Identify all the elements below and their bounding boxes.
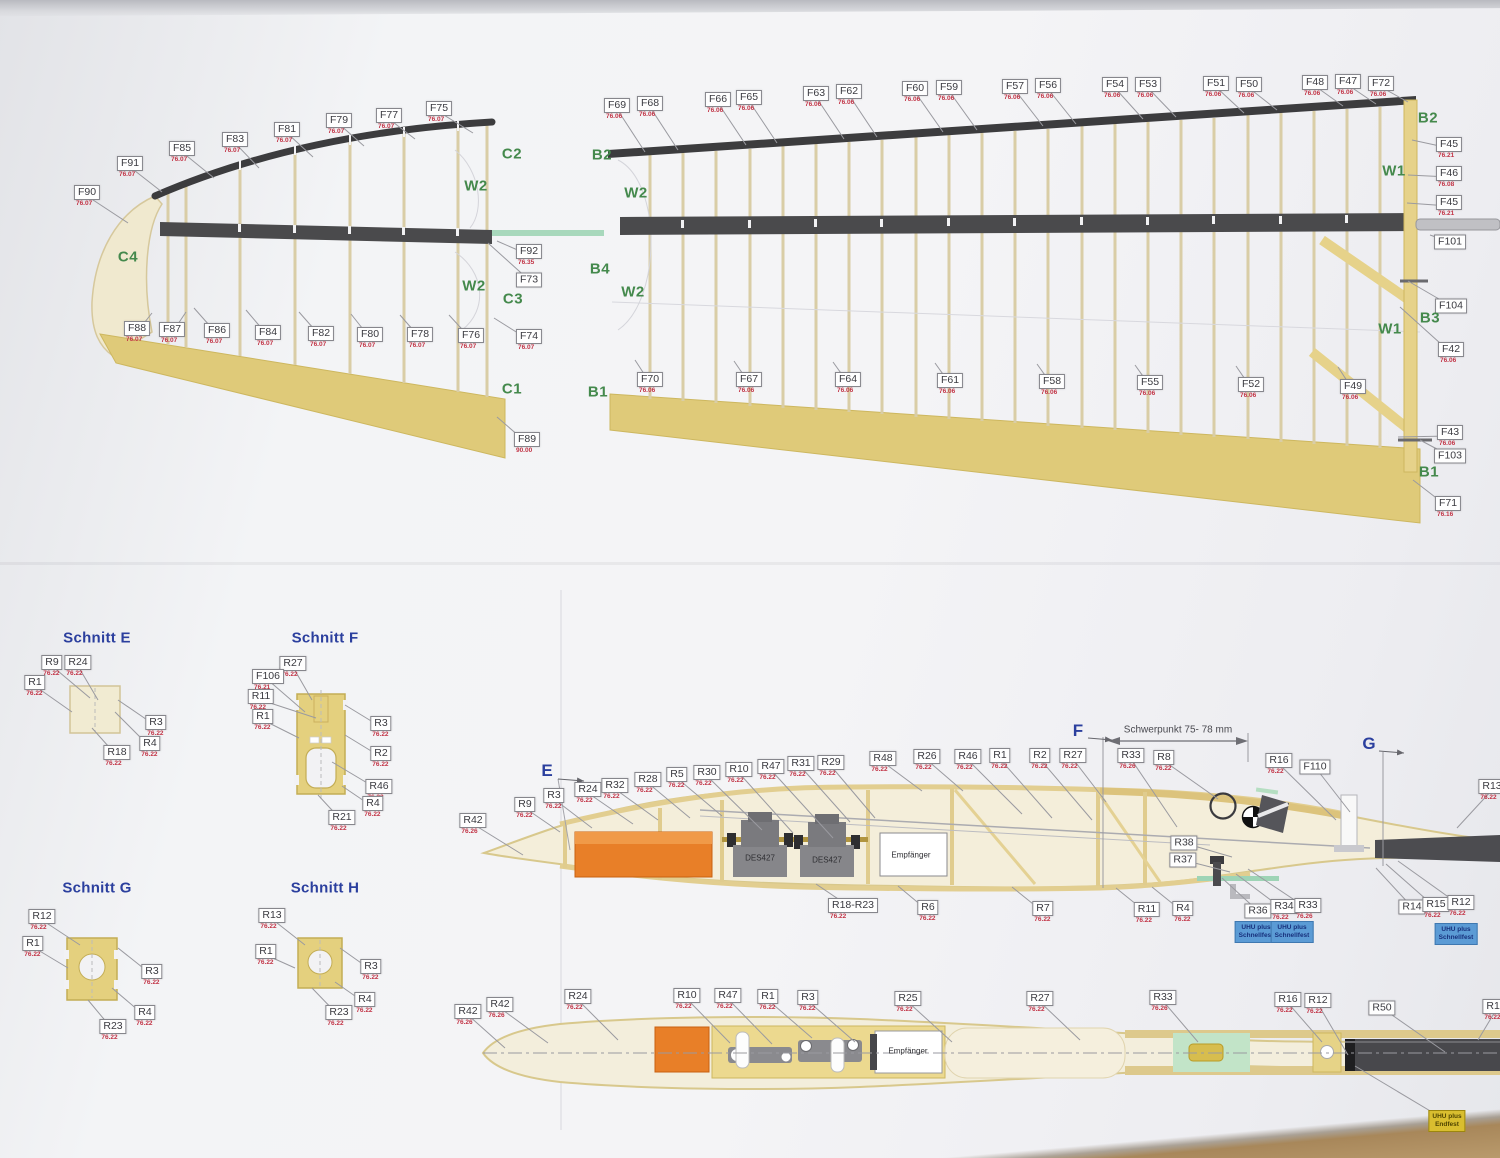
part-label-f60: F6076.06: [902, 81, 928, 103]
part-label-f43: F4376.06: [1437, 425, 1463, 447]
part-label-r47: R4776.22: [714, 988, 741, 1010]
part-label-r1: R176.22: [252, 709, 273, 731]
region-c4: C4: [118, 249, 138, 266]
part-label-r1: R176.22: [22, 936, 43, 958]
part-label-r6: R676.22: [917, 900, 938, 922]
part-label-r3: R376.22: [360, 959, 381, 981]
title-schnitt-h: Schnitt H: [291, 880, 360, 897]
part-label-f84: F8476.07: [255, 325, 281, 347]
title-schnitt-e: Schnitt E: [63, 630, 131, 647]
part-label-r2: R276.22: [370, 746, 391, 768]
part-label-f82: F8276.07: [308, 326, 334, 348]
part-label-f58: F5876.06: [1039, 374, 1065, 396]
part-label-r11: R1176.22: [248, 689, 274, 711]
part-label-r48: R4876.22: [869, 751, 896, 773]
part-label-f77: F7776.07: [376, 108, 402, 130]
badge-blue-uhu-plus-schnellfest: UHU plusSchnellfest: [1271, 921, 1314, 943]
part-label-f89: F8990.00: [514, 432, 540, 454]
part-label-f87: F8776.07: [159, 322, 185, 344]
marker-f: F: [1073, 721, 1083, 741]
part-label-r50: R50: [1368, 1001, 1395, 1016]
part-label-r21: R2176.22: [328, 810, 355, 832]
part-label-r4: R476.22: [354, 992, 375, 1014]
part-label-r24: R2476.22: [574, 782, 601, 804]
part-label-f65: F6576.06: [736, 90, 762, 112]
part-label-r46: R4676.22: [954, 749, 981, 771]
part-label-f47: F4776.06: [1335, 74, 1361, 96]
part-label-r3: R376.22: [543, 788, 564, 810]
part-label-f64: F6476.06: [835, 372, 861, 394]
tiny-empfänger: Empfänger: [891, 851, 930, 860]
part-label-r24: R2476.22: [64, 655, 91, 677]
part-label-f83: F8376.07: [222, 132, 248, 154]
part-label-r13: R1376.22: [258, 908, 285, 930]
region-b1: B1: [588, 384, 608, 401]
plan-photo: F9076.07F9176.07F8576.07F8376.07F8176.07…: [0, 0, 1500, 1158]
title-schnitt-g: Schnitt G: [62, 880, 131, 897]
part-label-f70: F7076.06: [637, 372, 663, 394]
dim-schwerpunkt-75-78-mm: Schwerpunkt 75- 78 mm: [1124, 725, 1232, 736]
part-label-f92: F9276.35: [516, 244, 542, 266]
part-label-r12: R1276.22: [1304, 993, 1331, 1015]
part-label-f78: F7876.07: [407, 327, 433, 349]
region-c2: C2: [502, 146, 522, 163]
part-label-r12: R1276.22: [28, 909, 55, 931]
part-label-r4: R476.22: [134, 1005, 155, 1027]
part-label-f52: F5276.06: [1238, 377, 1264, 399]
part-label-r42: R4276.26: [486, 997, 513, 1019]
part-label-r23: R2376.22: [99, 1019, 126, 1041]
part-label-r27: R2776.22: [1059, 748, 1086, 770]
badge-yellow-uhu-plus-endfest: UHU plusEndfest: [1428, 1110, 1465, 1132]
part-label-f63: F6376.06: [803, 86, 829, 108]
part-label-r15: R1576.22: [1422, 897, 1449, 919]
part-label-f72: F7276.06: [1368, 76, 1394, 98]
region-w1: W1: [1378, 321, 1402, 338]
part-label-r33: R3376.26: [1294, 898, 1321, 920]
part-label-r4: R476.22: [139, 736, 160, 758]
part-label-r4: R476.22: [362, 796, 383, 818]
part-label-r2: R276.22: [1029, 748, 1050, 770]
part-label-f69: F6976.06: [604, 98, 630, 120]
part-label-r3: R376.22: [370, 716, 391, 738]
labels-layer: F9076.07F9176.07F8576.07F8376.07F8176.07…: [0, 0, 1500, 1158]
part-label-r1: R176.22: [757, 989, 778, 1011]
region-b2: B2: [1418, 110, 1438, 127]
part-label-r25: R2576.22: [894, 991, 921, 1013]
part-label-r3: R376.22: [145, 715, 166, 737]
part-label-f101: F101: [1434, 235, 1466, 250]
part-label-r12: R1276.22: [1447, 895, 1474, 917]
marker-e: E: [541, 761, 552, 781]
part-label-f73: F73: [516, 273, 542, 288]
part-label-r27: R2776.22: [1026, 991, 1053, 1013]
part-label-r29: R2976.22: [817, 755, 844, 777]
part-label-f76: F7676.07: [458, 328, 484, 350]
part-label-f61: F6176.06: [937, 373, 963, 395]
part-label-r31: R3176.22: [787, 756, 814, 778]
part-label-r1: R176.22: [255, 944, 276, 966]
tiny-des427: DES427: [745, 854, 775, 863]
marker-g: G: [1362, 734, 1375, 754]
part-label-f79: F7976.07: [326, 113, 352, 135]
part-label-f68: F6876.06: [637, 96, 663, 118]
part-label-f91: F9176.07: [117, 156, 143, 178]
part-label-r30: R3076.22: [693, 765, 720, 787]
part-label-f80: F8076.07: [357, 327, 383, 349]
part-label-f51: F5176.06: [1203, 76, 1229, 98]
part-label-f42: F4276.06: [1438, 342, 1464, 364]
part-label-r47: R4776.22: [757, 759, 784, 781]
part-label-r9: R976.22: [514, 797, 535, 819]
part-label-r13: R1376.22: [1482, 999, 1500, 1021]
part-label-f49: F4976.06: [1340, 379, 1366, 401]
part-label-f48: F4876.06: [1302, 75, 1328, 97]
part-label-r5: R576.22: [666, 767, 687, 789]
part-label-f54: F5476.06: [1102, 77, 1128, 99]
part-label-f74: F7476.07: [516, 329, 542, 351]
part-label-r16: R1676.22: [1265, 753, 1292, 775]
tiny-empfänger: Empfänger: [888, 1047, 927, 1056]
part-label-f56: F5676.06: [1035, 78, 1061, 100]
region-w2: W2: [462, 278, 486, 295]
part-label-r9: R976.22: [41, 655, 62, 677]
part-label-f85: F8576.07: [169, 141, 195, 163]
part-label-f88: F8876.07: [124, 321, 150, 343]
part-label-r26: R2676.22: [913, 749, 940, 771]
region-w1: W1: [1382, 163, 1406, 180]
part-label-f50: F5076.06: [1236, 77, 1262, 99]
badge-blue-uhu-plus-schnellfest: UHU plusSchnellfest: [1435, 923, 1478, 945]
part-label-r18: R1876.22: [103, 745, 130, 767]
part-label-f75: F7576.07: [426, 101, 452, 123]
region-w2: W2: [464, 178, 488, 195]
part-label-f110: F110: [1299, 760, 1330, 775]
part-label-r3: R376.22: [141, 964, 162, 986]
part-label-f45: F4576.21: [1436, 195, 1462, 217]
part-label-r8: R876.22: [1153, 750, 1174, 772]
part-label-r42: R4276.26: [454, 1004, 481, 1026]
part-label-f81: F8176.07: [274, 122, 300, 144]
part-label-f103: F103: [1434, 449, 1466, 464]
part-label-r16: R1676.22: [1274, 992, 1301, 1014]
part-label-f46: F4676.08: [1436, 166, 1462, 188]
part-label-r36: R36: [1244, 904, 1271, 919]
part-label-r24: R2476.22: [564, 989, 591, 1011]
part-label-r1: R176.22: [24, 675, 45, 697]
part-label-f71: F7176.16: [1435, 496, 1461, 518]
region-w2: W2: [621, 284, 645, 301]
part-label-r10: R1076.22: [673, 988, 700, 1010]
part-label-f106: F10676.21: [252, 669, 284, 691]
region-w2: W2: [624, 185, 648, 202]
region-b4: B4: [590, 261, 610, 278]
part-label-f57: F5776.06: [1002, 79, 1028, 101]
part-label-f86: F8676.07: [204, 323, 230, 345]
part-label-r28: R2876.22: [634, 772, 661, 794]
part-label-r23: R2376.22: [325, 1005, 352, 1027]
part-label-r4: R476.22: [1172, 901, 1193, 923]
region-c3: C3: [503, 291, 523, 308]
part-label-r33: R3376.26: [1149, 990, 1176, 1012]
region-b2: B2: [592, 147, 612, 164]
part-label-r37: R37: [1169, 853, 1196, 868]
part-label-f66: F6676.06: [705, 92, 731, 114]
part-label-r11: R1176.22: [1134, 902, 1160, 924]
part-label-r7: R776.22: [1032, 901, 1053, 923]
part-label-r32: R3276.22: [601, 778, 628, 800]
part-label-r10: R1076.22: [725, 762, 752, 784]
part-label-r1: R176.22: [989, 748, 1010, 770]
region-c1: C1: [502, 381, 522, 398]
part-label-r38: R38: [1170, 836, 1197, 851]
region-b3: B3: [1420, 310, 1440, 327]
part-label-f55: F5576.06: [1137, 375, 1163, 397]
part-label-f67: F6776.06: [736, 372, 762, 394]
part-label-f62: F6276.06: [836, 84, 862, 106]
region-b1: B1: [1419, 464, 1439, 481]
part-label-f53: F5376.06: [1135, 77, 1161, 99]
part-label-f90: F9076.07: [74, 185, 100, 207]
part-label-r42: R4276.26: [459, 813, 486, 835]
tiny-des427: DES427: [812, 856, 842, 865]
part-label-r33: R3376.26: [1117, 748, 1144, 770]
part-label-f59: F5976.06: [936, 80, 962, 102]
part-label-r13: R1376.22: [1478, 779, 1500, 801]
part-label-f45: F4576.21: [1436, 137, 1462, 159]
title-schnitt-f: Schnitt F: [292, 630, 359, 647]
part-label-r18-r23: R18-R2376.22: [828, 898, 878, 920]
part-label-r3: R376.22: [797, 990, 818, 1012]
